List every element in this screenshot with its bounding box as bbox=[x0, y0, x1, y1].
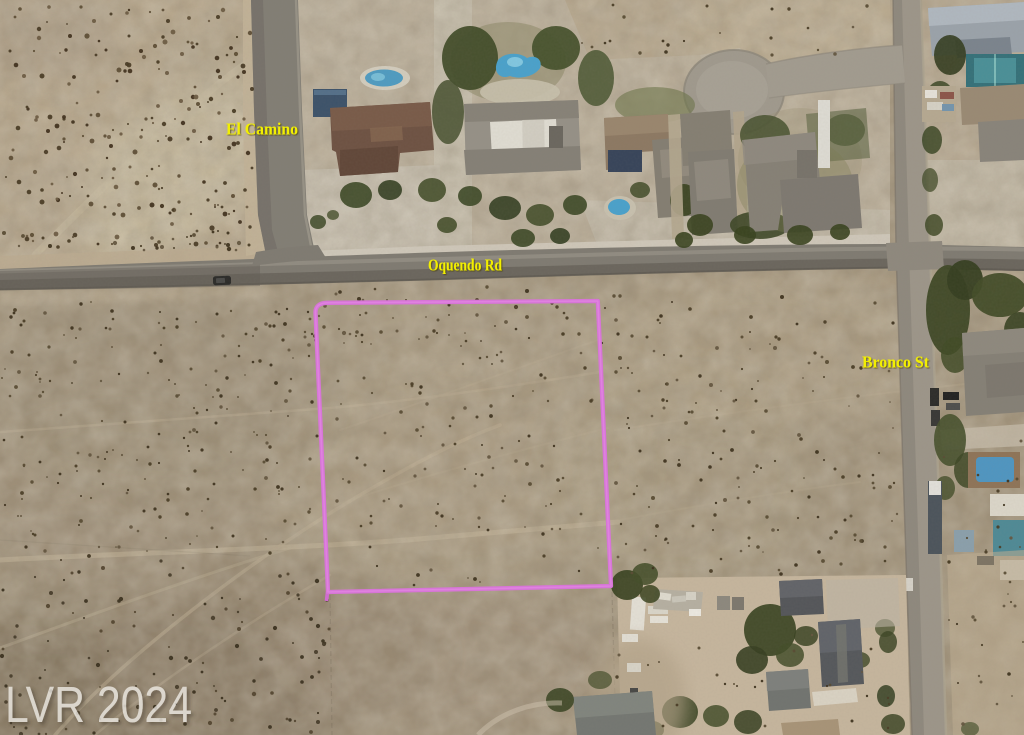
svg-text:El Camino: El Camino bbox=[226, 120, 298, 139]
svg-text:Oquendo Rd: Oquendo Rd bbox=[428, 256, 502, 275]
svg-text:Bronco St: Bronco St bbox=[862, 353, 929, 372]
svg-text:LVR 2024: LVR 2024 bbox=[5, 676, 192, 733]
